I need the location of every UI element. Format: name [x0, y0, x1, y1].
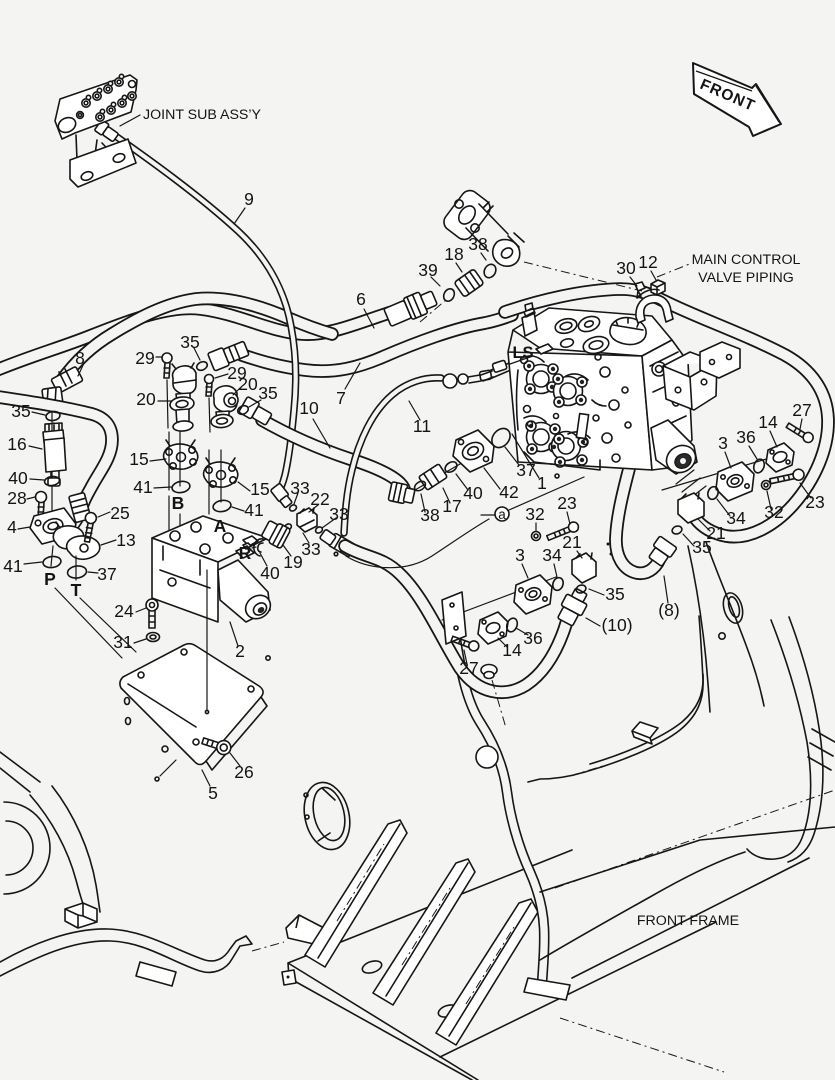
svg-text:(8): (8) — [658, 600, 679, 620]
svg-text:14: 14 — [502, 640, 522, 660]
svg-text:36: 36 — [736, 427, 755, 447]
svg-text:28: 28 — [7, 488, 26, 508]
svg-text:35: 35 — [11, 401, 30, 421]
svg-text:20: 20 — [136, 389, 156, 409]
svg-text:36: 36 — [523, 628, 542, 648]
svg-text:37: 37 — [516, 460, 535, 480]
svg-text:39: 39 — [418, 260, 437, 280]
svg-text:1: 1 — [537, 473, 547, 493]
svg-text:10: 10 — [299, 398, 319, 418]
svg-text:12: 12 — [638, 252, 657, 272]
svg-text:33: 33 — [290, 478, 309, 498]
svg-text:15: 15 — [250, 479, 269, 499]
svg-text:14: 14 — [758, 412, 778, 432]
svg-text:11: 11 — [413, 416, 431, 436]
svg-text:25: 25 — [110, 503, 129, 523]
svg-text:34: 34 — [542, 545, 562, 565]
svg-text:3: 3 — [718, 433, 728, 453]
svg-text:R: R — [239, 543, 252, 563]
svg-text:4: 4 — [7, 517, 17, 537]
svg-text:41: 41 — [244, 500, 263, 520]
svg-text:6: 6 — [356, 289, 366, 309]
svg-text:B: B — [172, 493, 185, 513]
svg-text:a: a — [498, 507, 506, 522]
svg-text:27: 27 — [792, 400, 811, 420]
svg-text:22: 22 — [310, 489, 329, 509]
svg-text:T: T — [71, 580, 82, 600]
svg-text:(10): (10) — [601, 615, 632, 635]
svg-text:26: 26 — [234, 762, 253, 782]
svg-text:37: 37 — [97, 564, 116, 584]
svg-text:7: 7 — [336, 388, 346, 408]
svg-text:MAIN CONTROL: MAIN CONTROL — [692, 252, 801, 268]
svg-text:13: 13 — [116, 530, 135, 550]
svg-text:18: 18 — [444, 244, 463, 264]
svg-text:24: 24 — [114, 601, 134, 621]
svg-text:20: 20 — [238, 374, 258, 394]
svg-text:15: 15 — [129, 449, 148, 469]
svg-text:VALVE PIPING: VALVE PIPING — [698, 270, 794, 286]
svg-text:34: 34 — [726, 508, 746, 528]
svg-text:JOINT SUB ASS’Y: JOINT SUB ASS’Y — [143, 107, 262, 123]
svg-text:LS: LS — [512, 344, 533, 362]
svg-text:21: 21 — [706, 523, 725, 543]
svg-text:40: 40 — [463, 483, 483, 503]
svg-text:A: A — [214, 516, 227, 536]
svg-text:9: 9 — [244, 189, 254, 209]
svg-text:19: 19 — [283, 552, 302, 572]
svg-text:38: 38 — [468, 234, 487, 254]
svg-text:27: 27 — [459, 658, 478, 678]
svg-text:32: 32 — [764, 502, 783, 522]
svg-text:40: 40 — [260, 563, 280, 583]
svg-text:23: 23 — [557, 493, 576, 513]
svg-text:30: 30 — [616, 258, 636, 278]
svg-text:38: 38 — [420, 505, 439, 525]
svg-text:FRONT FRAME: FRONT FRAME — [637, 913, 739, 929]
svg-text:40: 40 — [8, 468, 28, 488]
svg-text:P: P — [44, 569, 56, 589]
svg-text:42: 42 — [499, 482, 518, 502]
svg-text:3: 3 — [515, 545, 525, 565]
svg-text:2: 2 — [235, 641, 245, 661]
svg-text:41: 41 — [133, 477, 152, 497]
svg-text:41: 41 — [3, 556, 22, 576]
svg-text:29: 29 — [135, 348, 154, 368]
svg-text:17: 17 — [442, 496, 461, 516]
svg-text:16: 16 — [7, 434, 26, 454]
svg-text:35: 35 — [605, 584, 624, 604]
svg-text:35: 35 — [180, 332, 199, 352]
svg-text:21: 21 — [562, 532, 581, 552]
svg-text:33: 33 — [301, 539, 320, 559]
svg-text:31: 31 — [113, 632, 132, 652]
svg-text:32: 32 — [525, 504, 544, 524]
